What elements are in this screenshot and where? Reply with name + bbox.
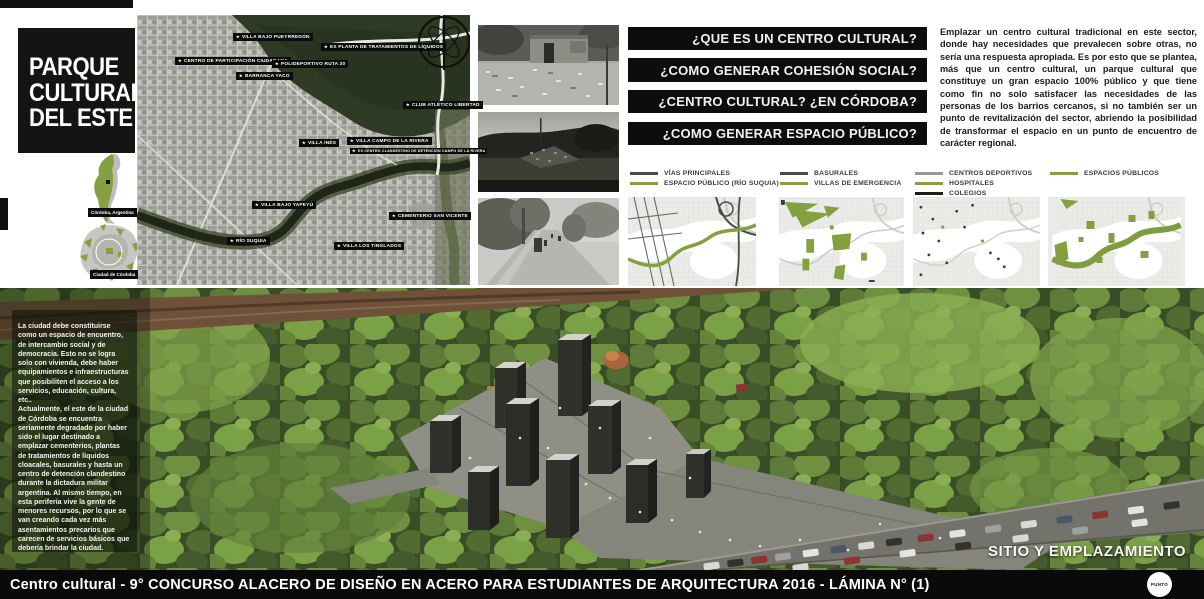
- footer-title: Centro cultural - 9° CONCURSO ALACERO DE…: [10, 577, 930, 593]
- legend-item: HOSPITALES: [915, 180, 994, 187]
- footer-bar: Centro cultural - 9° CONCURSO ALACERO DE…: [0, 570, 1204, 599]
- left-edge-block: [0, 198, 8, 230]
- legend-line-swatch: [630, 172, 658, 175]
- map-label: VILLA BAJO YAPEYÚ: [261, 203, 313, 208]
- map-label-chip: ★BARRANCA YACO: [236, 72, 293, 80]
- map-label-chip: ★VILLA BAJO PUEYRREDÓN: [233, 33, 313, 41]
- country-label: Córdoba, Argentina: [88, 208, 137, 217]
- map-label: VILLA CAMPO DE LA RIVERA: [356, 139, 429, 144]
- map-label: EX CENTRO CLANDESTINO DE DETENCIÓN CAMPO…: [358, 149, 485, 153]
- legend-item: ESPACIOS PÚBLICOS: [1050, 170, 1159, 177]
- project-title-block: PARQUE CULTURAL DEL ESTE: [18, 28, 135, 153]
- mini-map-vias-espacio-publico: [628, 197, 756, 286]
- legend-item: ESPACIO PÚBLICO (RÍO SUQUIA): [630, 180, 779, 187]
- legend-label: ESPACIOS PÚBLICOS: [1084, 170, 1159, 177]
- aerial-site-map: ★VILLA BAJO PUEYRREDÓN ★EX PLANTA DE TRA…: [137, 15, 470, 285]
- legend-line-swatch: [1050, 172, 1078, 175]
- map-marker-star-icon: ★: [392, 214, 396, 218]
- legend-item: BASURALES: [780, 170, 858, 177]
- map-marker-star-icon: ★: [255, 203, 259, 207]
- map-marker-star-icon: ★: [230, 239, 234, 243]
- question-text: ¿COMO GENERAR ESPACIO PÚBLICO?: [663, 126, 917, 141]
- legend-line-swatch: [915, 192, 943, 195]
- question-text: ¿QUE ES UN CENTRO CULTURAL?: [692, 31, 917, 46]
- site-photo-ruins: [478, 25, 619, 105]
- legend-item: VILLAS DE EMERGENCIA: [780, 180, 901, 187]
- render-caption: SITIO Y EMPLAZAMIENTO: [988, 543, 1186, 560]
- context-text-panel: La ciudad debe constituirse como un espa…: [12, 310, 137, 552]
- map-label: EX PLANTA DE TRATAMIENTOS DE LÍQUIDOS: [330, 45, 443, 50]
- map-label-chip: ★RÍO SUQUIA: [227, 237, 270, 245]
- map-marker-star-icon: ★: [350, 139, 354, 143]
- context-text: La ciudad debe constituirse como un espa…: [18, 322, 130, 553]
- site-photo-road: [478, 198, 619, 285]
- map-marker-star-icon: ★: [236, 35, 240, 39]
- context-paragraph-1: La ciudad debe constituirse como un espa…: [18, 322, 130, 405]
- map-label: VILLA BAJO PUEYRREDÓN: [242, 35, 310, 40]
- site-photo-dump: [478, 112, 619, 192]
- map-label-chip: ★CLUB ATLÉTICO LIBERTAD: [403, 101, 483, 109]
- mini-map-equipamientos: [913, 197, 1040, 286]
- map-label-chip: ★EX PLANTA DE TRATAMIENTOS DE LÍQUIDOS: [321, 43, 446, 51]
- map-label-chip: ★CEMENTERIO SAN VICENTE: [389, 212, 471, 220]
- legend-label: ESPACIO PÚBLICO (RÍO SUQUIA): [664, 180, 779, 187]
- question-text: ¿COMO GENERAR COHESIÓN SOCIAL?: [660, 63, 917, 78]
- map-marker-star-icon: ★: [302, 141, 306, 145]
- question-banner-2: ¿COMO GENERAR COHESIÓN SOCIAL?: [628, 58, 927, 82]
- title-line-2: CULTURAL: [29, 81, 144, 107]
- legend-label: HOSPITALES: [949, 180, 994, 187]
- map-label-chip: ★EX CENTRO CLANDESTINO DE DETENCIÓN CAMP…: [350, 148, 487, 154]
- legend-item: COLEGIOS: [915, 190, 986, 197]
- map-marker-star-icon: ★: [178, 59, 182, 63]
- map-marker-star-icon: ★: [275, 62, 279, 66]
- legend-line-swatch: [780, 172, 808, 175]
- map-label: BARRANCA YACO: [245, 74, 290, 79]
- question-text: ¿CENTRO CULTURAL? ¿EN CÓRDOBA?: [658, 94, 917, 109]
- map-label-chip: ★VILLA BAJO YAPEYÚ: [252, 201, 316, 209]
- legend-line-swatch: [630, 182, 658, 185]
- legend-line-swatch: [915, 182, 943, 185]
- map-marker-star-icon: ★: [352, 149, 356, 153]
- project-title: PARQUE CULTURAL DEL ESTE: [29, 55, 144, 132]
- map-label: CEMENTERIO SAN VICENTE: [398, 214, 468, 219]
- legend-line-swatch: [780, 182, 808, 185]
- question-banner-1: ¿QUE ES UN CENTRO CULTURAL?: [628, 27, 927, 50]
- site-render-image: [0, 288, 1204, 570]
- legend-label: BASURALES: [814, 170, 858, 177]
- map-marker-star-icon: ★: [324, 45, 328, 49]
- presentation-board: PARQUE CULTURAL DEL ESTE Córdoba, Argent…: [0, 0, 1204, 599]
- map-label-chip: ★VILLA INÉS: [299, 139, 339, 147]
- map-marker-star-icon: ★: [239, 74, 243, 78]
- top-border-strip: [0, 0, 133, 8]
- intro-paragraph: Emplazar un centro cultural tradicional …: [940, 26, 1197, 149]
- map-label: VILLA INÉS: [308, 141, 336, 146]
- legend-item: CENTROS DEPORTIVOS: [915, 170, 1032, 177]
- mini-map-basurales-villas: [779, 197, 904, 286]
- question-banner-4: ¿COMO GENERAR ESPACIO PÚBLICO?: [628, 122, 927, 145]
- map-label: RÍO SUQUIA: [236, 239, 267, 244]
- legend-line-swatch: [915, 172, 943, 175]
- legend-label: VILLAS DE EMERGENCIA: [814, 180, 901, 187]
- context-paragraph-2: Actualmente, el este de la ciudad de Cór…: [18, 405, 130, 553]
- title-line-1: PARQUE: [29, 55, 144, 81]
- map-marker-star-icon: ★: [406, 103, 410, 107]
- title-line-3: DEL ESTE: [29, 106, 144, 132]
- map-label-chip: ★POLIDEPORTIVO RUTA 20: [272, 60, 348, 68]
- legend-label: CENTROS DEPORTIVOS: [949, 170, 1032, 177]
- map-label: POLIDEPORTIVO RUTA 20: [281, 62, 345, 67]
- map-label: VILLA LOS TINGLADOS: [343, 244, 401, 249]
- punto-logo-text: PUNTO: [1151, 582, 1168, 587]
- map-label: CLUB ATLÉTICO LIBERTAD: [412, 103, 480, 108]
- question-banner-3: ¿CENTRO CULTURAL? ¿EN CÓRDOBA?: [628, 90, 927, 113]
- legend-label: COLEGIOS: [949, 190, 986, 197]
- city-label: Ciudad de Córdoba: [90, 270, 138, 279]
- legend-label: VÍAS PRINCIPALES: [664, 170, 730, 177]
- punto-logo: PUNTO: [1147, 572, 1172, 597]
- legend-item: VÍAS PRINCIPALES: [630, 170, 730, 177]
- map-label-chip: ★VILLA CAMPO DE LA RIVERA: [347, 137, 432, 145]
- map-marker-star-icon: ★: [337, 244, 341, 248]
- map-label-chip: ★VILLA LOS TINGLADOS: [334, 242, 404, 250]
- mini-map-espacios-publicos: [1048, 197, 1185, 286]
